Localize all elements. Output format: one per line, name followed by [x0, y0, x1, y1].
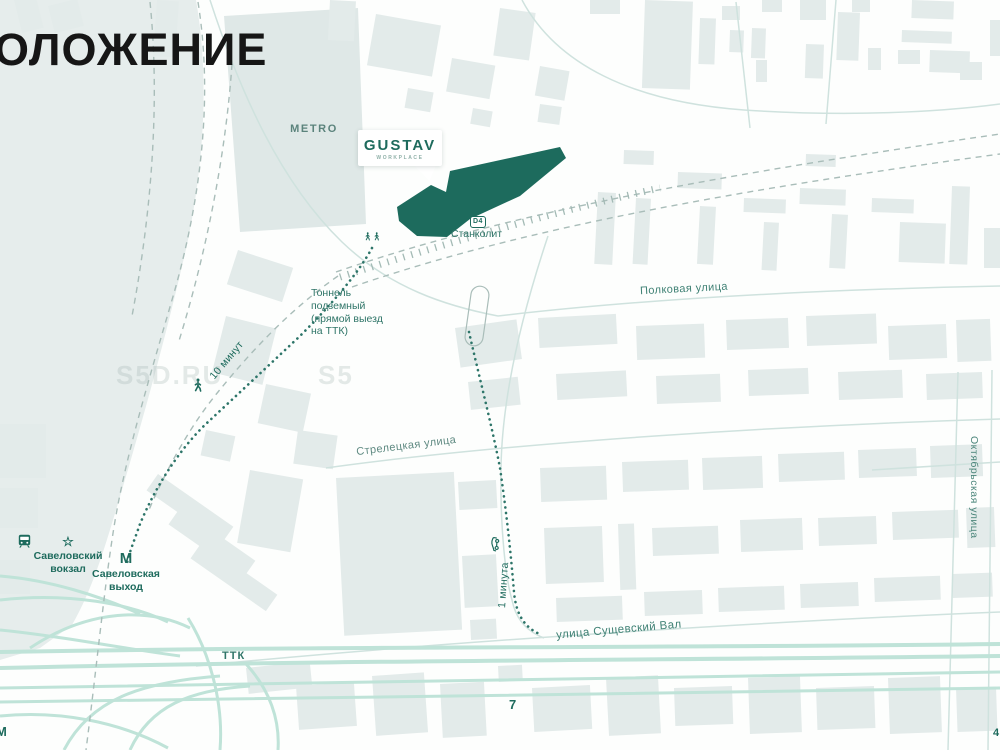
edge-label: 4 — [993, 727, 999, 739]
watermark: S5D.RU — [116, 360, 223, 391]
crossing-walker-icon — [375, 232, 378, 240]
page-title: ОЛОЖЕНИЕ — [0, 24, 267, 76]
callout-title: GUSTAV — [358, 137, 442, 154]
train-icon — [18, 534, 31, 548]
metro-territory-label: METRO — [284, 123, 344, 135]
tunnel-note: Тоннель подземный (прямой выезд на ТТК) — [311, 287, 383, 338]
station-stankolit-label: Станколит — [451, 228, 502, 240]
ttk-label: ТТК — [222, 650, 245, 662]
star-icon: ☆ — [62, 535, 74, 548]
corner-metro-letter: М — [0, 724, 7, 739]
metro-savyolovskaya: М Савеловская выход — [84, 551, 168, 594]
car-icon — [491, 537, 499, 551]
watermark-partial: S5 — [318, 360, 354, 391]
d4-line-badge: D4 — [470, 216, 486, 228]
crossing-walker-icon — [366, 232, 369, 240]
location-map-slide: S5D.RU S5 ОЛОЖЕНИЕ METRO GUSTAV WORKPLAC… — [0, 0, 1000, 750]
map-number-label: 7 — [509, 697, 516, 712]
gustav-callout: GUSTAV WORKPLACE — [358, 130, 442, 166]
metro-exit-label: Савеловская выход — [84, 568, 168, 594]
metro-m-icon: М — [84, 551, 168, 566]
callout-subtitle: WORKPLACE — [358, 155, 442, 161]
street-oktyabrskaya-label: Октябрьская улица — [968, 436, 980, 539]
